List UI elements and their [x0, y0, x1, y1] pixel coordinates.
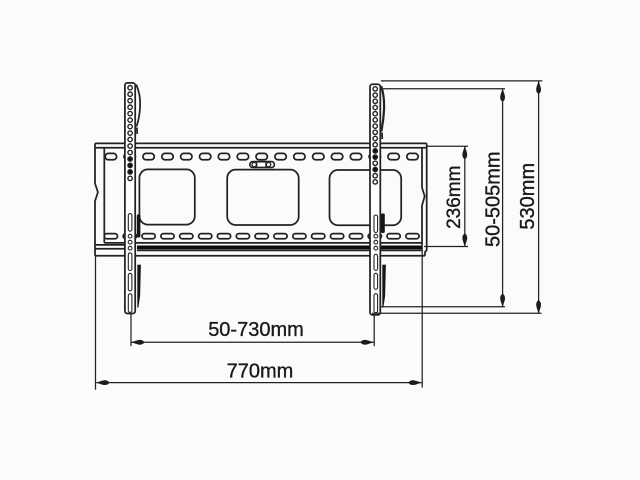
- svg-text:236mm: 236mm: [444, 166, 465, 229]
- svg-text:770mm: 770mm: [227, 361, 294, 383]
- svg-text:50-505mm: 50-505mm: [482, 151, 504, 247]
- svg-text:50-730mm: 50-730mm: [208, 319, 304, 341]
- svg-text:530mm: 530mm: [517, 163, 539, 230]
